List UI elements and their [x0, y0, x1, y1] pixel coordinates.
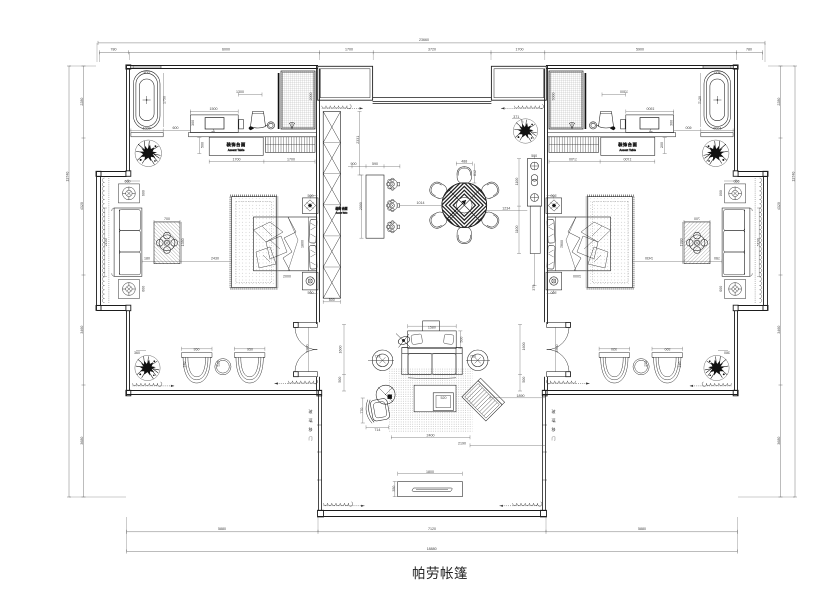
svg-text:2100: 2100: [104, 238, 108, 246]
svg-text:3680: 3680: [777, 437, 781, 445]
svg-text:350: 350: [392, 486, 396, 492]
svg-text:1800: 1800: [426, 470, 434, 474]
svg-text:璃: 璃: [552, 417, 556, 423]
svg-text:5900: 5900: [636, 48, 644, 52]
svg-text:2000: 2000: [309, 93, 313, 101]
svg-text:1000: 1000: [143, 127, 151, 131]
svg-text:2400: 2400: [427, 434, 435, 438]
svg-text:300: 300: [191, 120, 195, 126]
svg-text:180: 180: [144, 257, 150, 261]
svg-text:379: 379: [532, 285, 536, 291]
svg-text:1500: 1500: [210, 107, 218, 111]
svg-text:1890: 1890: [517, 394, 525, 398]
svg-text:500: 500: [329, 298, 335, 302]
svg-text:525: 525: [217, 361, 221, 367]
svg-text:4320: 4320: [80, 202, 84, 210]
svg-text:2331: 2331: [356, 136, 360, 144]
svg-text:900: 900: [351, 162, 357, 166]
svg-text:6000: 6000: [222, 48, 230, 52]
svg-text:812: 812: [473, 170, 477, 176]
svg-text:13740: 13740: [792, 172, 796, 182]
svg-text:590: 590: [372, 162, 378, 166]
svg-text:1700: 1700: [287, 157, 295, 161]
svg-text:950: 950: [194, 347, 200, 351]
svg-text:714: 714: [374, 428, 380, 432]
svg-text:13740: 13740: [66, 172, 70, 182]
svg-text:1600: 1600: [522, 342, 526, 350]
svg-text:璃: 璃: [309, 417, 313, 423]
svg-text:500: 500: [460, 337, 464, 343]
svg-text:600: 600: [142, 286, 146, 292]
svg-text:Accent Table: Accent Table: [336, 212, 349, 215]
svg-text:520: 520: [441, 396, 447, 400]
svg-text:装饰台面: 装饰台面: [227, 141, 246, 148]
svg-text:800: 800: [144, 70, 150, 74]
svg-text:2190: 2190: [458, 441, 466, 445]
svg-text:1800: 1800: [300, 240, 304, 248]
svg-text:门: 门: [552, 435, 556, 441]
svg-text:帕劳帐篷: 帕劳帐篷: [412, 566, 468, 581]
svg-text:2430: 2430: [211, 257, 219, 261]
svg-text:3460: 3460: [80, 326, 84, 334]
svg-text:500: 500: [531, 154, 537, 158]
svg-text:1350: 1350: [181, 238, 185, 246]
svg-text:770: 770: [360, 408, 364, 414]
svg-text:500: 500: [201, 142, 205, 148]
svg-text:玻: 玻: [552, 408, 556, 414]
svg-text:1014: 1014: [417, 201, 425, 205]
svg-text:移: 移: [309, 426, 313, 432]
svg-text:371: 371: [513, 115, 519, 119]
svg-text:780: 780: [746, 48, 752, 52]
svg-text:4320: 4320: [777, 202, 781, 210]
svg-text:2000: 2000: [283, 274, 291, 278]
svg-text:500: 500: [522, 377, 526, 383]
svg-text:Accent Table: Accent Table: [619, 149, 636, 152]
svg-text:1700: 1700: [516, 48, 524, 52]
svg-text:2280: 2280: [777, 98, 781, 106]
svg-text:3460: 3460: [777, 326, 781, 334]
svg-text:移: 移: [552, 426, 556, 432]
svg-text:500: 500: [338, 377, 342, 383]
svg-text:装饰台面: 装饰台面: [618, 141, 637, 148]
svg-text:1800: 1800: [305, 345, 309, 353]
svg-text:1234: 1234: [502, 206, 510, 210]
svg-text:5880: 5880: [218, 527, 226, 531]
svg-text:360: 360: [134, 351, 140, 355]
svg-text:1580: 1580: [428, 325, 436, 329]
svg-text:装饰 台面: 装饰 台面: [336, 207, 348, 211]
svg-text:750: 750: [470, 355, 476, 359]
svg-text:玻: 玻: [309, 408, 313, 414]
svg-text:1700: 1700: [345, 48, 353, 52]
svg-text:1100: 1100: [515, 225, 519, 233]
svg-text:门: 门: [309, 435, 313, 441]
svg-text:1750: 1750: [162, 96, 166, 104]
svg-text:1700: 1700: [233, 157, 241, 161]
svg-text:1600: 1600: [339, 346, 343, 354]
svg-text:1300: 1300: [236, 90, 244, 94]
svg-text:140: 140: [183, 362, 187, 368]
svg-text:Accent Table: Accent Table: [228, 149, 245, 152]
svg-text:950: 950: [247, 347, 253, 351]
svg-text:600: 600: [173, 126, 179, 130]
svg-text:18880: 18880: [427, 547, 437, 551]
svg-text:700: 700: [164, 217, 170, 221]
svg-text:23660: 23660: [419, 38, 429, 42]
svg-text:2000: 2000: [359, 202, 363, 210]
svg-text:1100: 1100: [515, 178, 519, 186]
svg-text:780: 780: [111, 48, 117, 52]
svg-text:7120: 7120: [428, 527, 436, 531]
svg-text:5880: 5880: [638, 527, 646, 531]
svg-text:3720: 3720: [428, 48, 436, 52]
svg-text:600: 600: [125, 180, 131, 184]
svg-text:488: 488: [461, 159, 467, 163]
svg-text:714: 714: [375, 355, 381, 359]
svg-text:600: 600: [142, 190, 146, 196]
svg-text:3680: 3680: [80, 437, 84, 445]
svg-text:2280: 2280: [80, 98, 84, 106]
